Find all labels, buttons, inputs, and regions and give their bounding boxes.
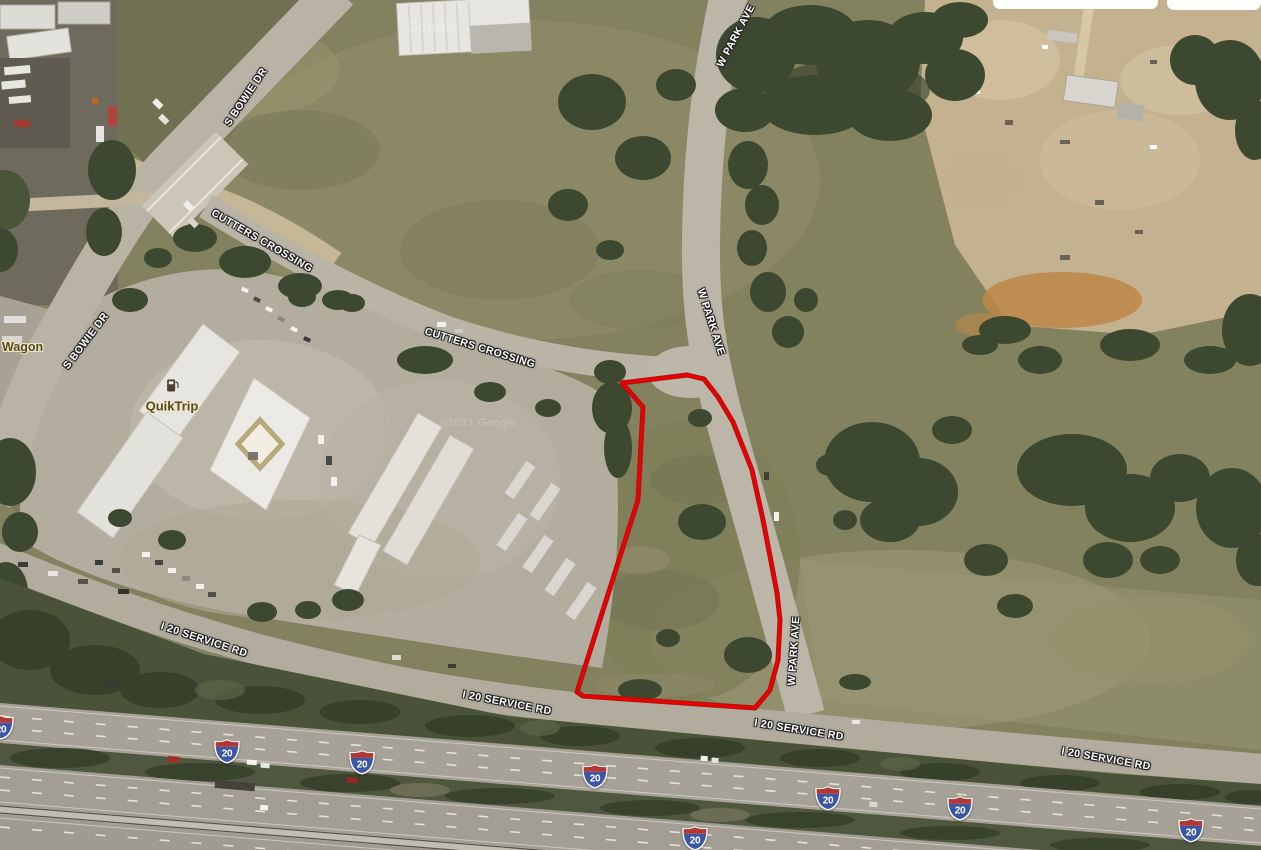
cutoff-ui-box-left: [993, 0, 1158, 9]
cutoff-ui-box-right: [1167, 0, 1261, 10]
satellite-imagery: [0, 0, 1261, 850]
satellite-map: Google©2021 Google S BOWIE DRS BOWIE DRC…: [0, 0, 1261, 850]
buildings-top-middle: [397, 0, 532, 57]
